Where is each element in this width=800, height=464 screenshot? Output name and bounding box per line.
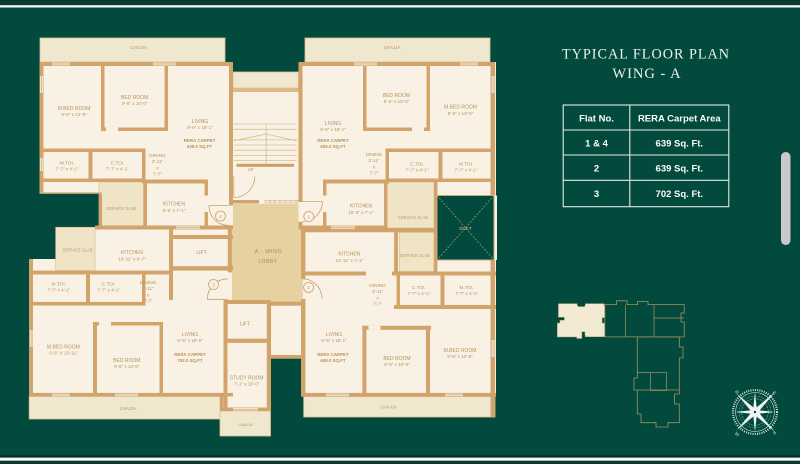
svg-text:LIVING: LIVING	[182, 332, 199, 338]
svg-text:3: 3	[594, 189, 599, 200]
svg-text:9'-6" x 18'-1": 9'-6" x 18'-1"	[187, 125, 213, 130]
svg-text:7'-7" x 4'-1": 7'-7" x 4'-1"	[455, 168, 478, 173]
svg-text:LOBBY: LOBBY	[258, 259, 277, 265]
svg-text:9'-6" x 13'-5": 9'-6" x 13'-5"	[61, 112, 87, 117]
svg-text:DINING: DINING	[366, 152, 383, 158]
svg-text:M.BED ROOM: M.BED ROOM	[47, 345, 80, 351]
svg-text:RERA CARPET: RERA CARPET	[184, 138, 216, 143]
svg-text:9'-6" x 10'-0": 9'-6" x 10'-0"	[384, 99, 410, 104]
svg-text:CHAJJA: CHAJJA	[120, 406, 137, 411]
svg-text:9'-6" x 10'-0": 9'-6" x 10'-0"	[384, 362, 410, 367]
svg-text:7'-7": 7'-7"	[143, 299, 152, 304]
svg-text:639 Sq. Ft.: 639 Sq. Ft.	[656, 164, 704, 175]
svg-text:1 & 4: 1 & 4	[585, 139, 608, 150]
svg-text:DINING: DINING	[369, 283, 386, 289]
svg-text:C.TOI.: C.TOI.	[110, 161, 124, 167]
svg-text:KITCHEN: KITCHEN	[121, 250, 143, 256]
svg-text:3'-11": 3'-11"	[372, 289, 384, 294]
svg-text:BED ROOM: BED ROOM	[113, 358, 140, 364]
svg-text:LIFT: LIFT	[240, 322, 250, 328]
svg-text:M.TOI.: M.TOI.	[52, 282, 67, 288]
svg-text:702.0 SQ.FT: 702.0 SQ.FT	[177, 358, 202, 363]
svg-text:7'-7" x 4'-1": 7'-7" x 4'-1"	[97, 288, 120, 293]
svg-text:7'-7": 7'-7"	[373, 302, 382, 307]
svg-text:KITCHEN: KITCHEN	[163, 202, 185, 208]
svg-text:BED ROOM: BED ROOM	[383, 93, 410, 99]
svg-text:LIVING: LIVING	[326, 332, 343, 338]
svg-text:7'-7": 7'-7"	[153, 172, 162, 177]
svg-text:702 Sq. Ft.: 702 Sq. Ft.	[656, 189, 704, 200]
svg-text:SERVICE SLAB: SERVICE SLAB	[106, 206, 136, 211]
svg-text:KITCHEN: KITCHEN	[338, 252, 360, 258]
svg-text:9'-6" x 18'-1": 9'-6" x 18'-1"	[320, 127, 346, 132]
svg-text:BED ROOM: BED ROOM	[383, 356, 410, 362]
svg-text:UP: UP	[248, 167, 254, 172]
svg-text:C.TOI.: C.TOI.	[410, 162, 424, 168]
svg-text:SERVICE SLAB: SERVICE SLAB	[398, 215, 428, 220]
svg-text:M.TOI.: M.TOI.	[459, 285, 474, 291]
svg-text:3'-11": 3'-11"	[152, 159, 164, 164]
svg-text:M.BED ROOM: M.BED ROOM	[444, 105, 477, 111]
svg-text:DUCT: DUCT	[459, 226, 472, 231]
svg-text:10'-11" x 6'-7": 10'-11" x 6'-7"	[118, 257, 146, 262]
svg-text:639.0 SQ.FT: 639.0 SQ.FT	[320, 358, 345, 363]
svg-text:9'-6" x 7'-1": 9'-6" x 7'-1"	[163, 208, 186, 213]
svg-text:SERVICE SLAB: SERVICE SLAB	[62, 248, 92, 253]
svg-text:M.BED ROOM: M.BED ROOM	[444, 348, 477, 354]
svg-text:7'-7" x 4'-1": 7'-7" x 4'-1"	[56, 167, 79, 172]
svg-text:A - WING: A - WING	[255, 249, 283, 255]
svg-text:CHAJJA: CHAJJA	[238, 423, 253, 427]
svg-text:LIFT: LIFT	[196, 250, 206, 256]
svg-text:CHAJJA: CHAJJA	[380, 405, 397, 410]
svg-text:M.TOI.: M.TOI.	[60, 161, 75, 167]
svg-text:LIVING: LIVING	[192, 119, 209, 125]
svg-text:7'-7" x 4'-1": 7'-7" x 4'-1"	[47, 288, 70, 293]
svg-text:7'-7": 7'-7"	[369, 171, 378, 176]
svg-text:DINING: DINING	[140, 280, 157, 286]
svg-text:9'-6" x 10'-0": 9'-6" x 10'-0"	[122, 101, 148, 106]
svg-text:9'-6" x 13'-5": 9'-6" x 13'-5"	[448, 111, 474, 116]
svg-text:BED ROOM: BED ROOM	[121, 95, 148, 101]
svg-text:9'-6" X 13'-11": 9'-6" X 13'-11"	[49, 351, 78, 356]
svg-text:7'-7" x 4'-1": 7'-7" x 4'-1"	[406, 168, 429, 173]
svg-text:639.0 SQ.FT: 639.0 SQ.FT	[320, 144, 345, 149]
svg-text:WING - A: WING - A	[612, 66, 681, 82]
svg-text:KITCHEN: KITCHEN	[350, 204, 372, 210]
svg-text:RERA Carpet Area: RERA Carpet Area	[638, 114, 721, 125]
svg-text:10'-0" x 7'-1": 10'-0" x 7'-1"	[348, 210, 374, 215]
svg-text:639 Sq. Ft.: 639 Sq. Ft.	[656, 139, 704, 150]
svg-text:C.TOI.: C.TOI.	[102, 282, 116, 288]
svg-text:9'-6" x 13'-5": 9'-6" x 13'-5"	[447, 354, 473, 359]
svg-text:RERA CARPET: RERA CARPET	[317, 352, 349, 357]
svg-text:RERA CARPET: RERA CARPET	[317, 138, 349, 143]
svg-text:13'-11" x 7'-1": 13'-11" x 7'-1"	[335, 258, 363, 263]
svg-text:SERVICE SLAB: SERVICE SLAB	[400, 253, 430, 258]
svg-text:RERA CARPET: RERA CARPET	[174, 352, 206, 357]
svg-text:CHAJJA: CHAJJA	[384, 45, 401, 50]
svg-text:C.TOI.: C.TOI.	[412, 285, 426, 291]
svg-text:7'-7" x 4'-1": 7'-7" x 4'-1"	[455, 291, 478, 296]
svg-text:DINING: DINING	[149, 153, 166, 159]
svg-text:7'-7" x 4'-1": 7'-7" x 4'-1"	[407, 291, 430, 296]
svg-text:9'-6" x 10'-0": 9'-6" x 10'-0"	[114, 364, 140, 369]
svg-text:9'-6" x 18'-6": 9'-6" x 18'-6"	[177, 338, 203, 343]
svg-text:STUDY ROOM: STUDY ROOM	[230, 376, 264, 382]
svg-text:M.TOI.: M.TOI.	[459, 162, 474, 168]
svg-text:TYPICAL FLOOR PLAN: TYPICAL FLOOR PLAN	[562, 46, 730, 62]
svg-text:9'-6" x 18'-1": 9'-6" x 18'-1"	[321, 338, 347, 343]
svg-text:3'-11": 3'-11"	[142, 286, 154, 291]
svg-text:2: 2	[594, 164, 599, 175]
svg-text:639.0 SQ.FT: 639.0 SQ.FT	[187, 144, 212, 149]
svg-text:LIVING: LIVING	[325, 121, 342, 127]
svg-text:7'-7" x 4'-1": 7'-7" x 4'-1"	[106, 167, 129, 172]
svg-text:3'-11": 3'-11"	[368, 158, 380, 163]
svg-text:M.BED ROOM: M.BED ROOM	[58, 106, 91, 112]
svg-text:Flat No.: Flat No.	[579, 114, 614, 125]
svg-text:CHAJJA: CHAJJA	[130, 45, 147, 50]
svg-text:7'-1" x 10'-0": 7'-1" x 10'-0"	[234, 382, 260, 387]
